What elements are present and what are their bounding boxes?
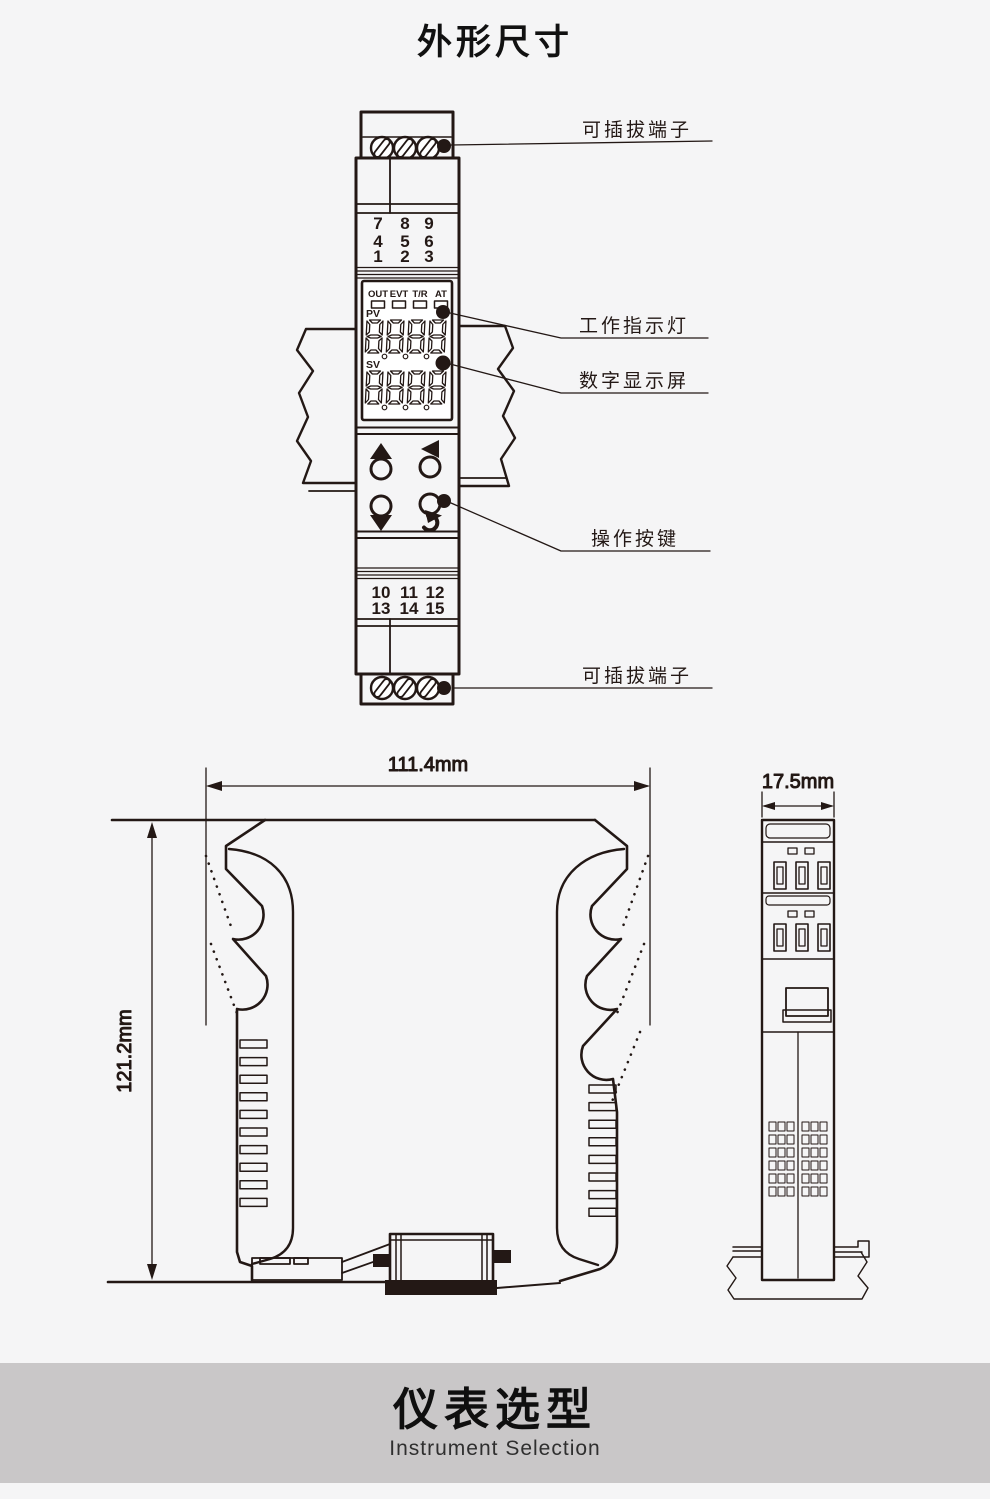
banner-title: 仪表选型 (393, 1385, 597, 1435)
status-label-out: OUT (368, 289, 388, 300)
screw-icon (394, 137, 416, 159)
dimension-diagram: 7 8 9 4 5 6 1 2 3 OUT EVT T/R AT (0, 0, 990, 1499)
height-dimension (147, 822, 157, 1280)
leader-dot (437, 681, 451, 695)
status-label-at: AT (435, 289, 447, 300)
housing-left-profile (226, 820, 268, 1280)
baseline-right (497, 1283, 560, 1288)
depth-dimension-label: 17.5mm (762, 771, 834, 793)
callouts (450, 141, 712, 688)
screw-icon (371, 677, 393, 699)
vent-slots-right (589, 1085, 616, 1216)
housing-right-profile (560, 820, 627, 1281)
terminal-1: 1 (373, 247, 382, 266)
din-clip-block (373, 1234, 511, 1295)
banner-subtitle: Instrument Selection (389, 1437, 600, 1461)
terminal-14: 14 (400, 599, 419, 618)
din-rail-wing-left (297, 329, 356, 491)
terminal-8: 8 (400, 214, 409, 233)
screw-icon (371, 137, 393, 159)
edge-terminal-section-a (762, 848, 834, 905)
digital-display-panel: OUT EVT T/R AT PV SV (362, 281, 452, 420)
leader-dot (437, 494, 451, 508)
rail-dotted-lines (206, 856, 648, 1104)
pv-label: PV (366, 308, 380, 320)
top-terminal-block (361, 112, 453, 159)
display-led-icon (436, 356, 451, 371)
edge-latch (762, 988, 834, 1032)
terminal-15: 15 (426, 599, 445, 618)
status-label-evt: EVT (390, 289, 409, 300)
height-dimension-label: 121.2mm (114, 1009, 136, 1092)
front-view: 7 8 9 4 5 6 1 2 3 OUT EVT T/R AT (297, 112, 712, 704)
width-dimension (206, 768, 650, 1025)
terminal-9: 9 (424, 214, 433, 233)
screw-icon (417, 137, 439, 159)
screw-icon (417, 677, 439, 699)
housing-left-inner-wall (229, 849, 293, 1264)
bottom-terminal-block (361, 674, 453, 704)
section-banner: 仪表选型 Instrument Selection (0, 1363, 990, 1483)
terminal-3: 3 (424, 247, 433, 266)
edge-view: 17.5mm (727, 771, 869, 1299)
label-work-indicator: 工作指示灯 (579, 315, 689, 337)
status-label-tr: T/R (412, 289, 427, 300)
depth-dimension (762, 792, 834, 817)
label-pluggable-terminal-top: 可插拔端子 (582, 119, 692, 141)
terminal-numbers-bottom: 10 11 12 13 14 15 (372, 583, 445, 618)
terminal-2: 2 (400, 247, 409, 266)
terminal-13: 13 (372, 599, 391, 618)
label-operation-buttons: 操作按键 (591, 528, 679, 550)
terminal-7: 7 (373, 214, 382, 233)
vent-slots-left (240, 1040, 267, 1206)
edge-terminal-section-b (762, 911, 834, 959)
screw-icon (394, 677, 416, 699)
din-rail-wing-right (460, 326, 515, 486)
width-dimension-label: 111.4mm (388, 754, 468, 776)
sv-label: SV (366, 359, 380, 371)
din-latch-plate (252, 1244, 390, 1280)
side-view: 111.4mm 121.2mm (108, 754, 650, 1295)
label-digital-display: 数字显示屏 (579, 370, 689, 392)
terminal-numbers-top: 7 8 9 4 5 6 1 2 3 (373, 214, 433, 266)
work-led-icon (436, 305, 450, 319)
label-pluggable-terminal-bottom: 可插拔端子 (582, 665, 692, 687)
leader-dot (437, 139, 451, 153)
